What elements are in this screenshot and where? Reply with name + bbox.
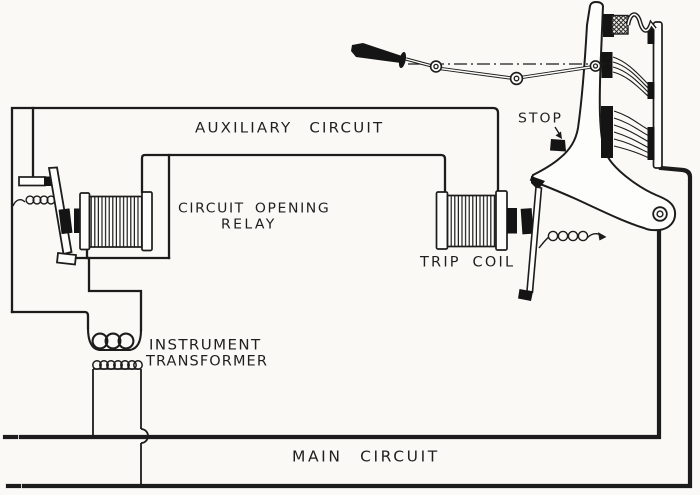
label-instrument-transformer-line1: INSTRUMENT <box>149 336 262 353</box>
label-circuit-opening-relay-line1: CIRCUIT OPENING <box>178 201 330 216</box>
relay-contact-bar <box>19 177 55 187</box>
flexible-lead <box>628 14 655 30</box>
clamp-block <box>612 16 628 35</box>
breaker-pivot <box>653 207 667 221</box>
label-main-circuit: MAIN CIRCUIT <box>292 448 440 465</box>
contact-brushes <box>613 57 649 158</box>
trip-plunger <box>518 176 545 301</box>
label-circuit-opening-relay-line2: RELAY <box>221 217 277 232</box>
circuit-breaker <box>518 2 675 301</box>
operating-linkage <box>351 43 612 84</box>
plunger-spring <box>539 231 605 248</box>
relay-armature <box>49 168 76 265</box>
relay-spring <box>13 196 55 206</box>
circuit-opening-relay <box>13 168 152 265</box>
relay-coil <box>74 192 152 251</box>
trip-coil <box>437 191 534 250</box>
stationary-contact-bar <box>654 22 663 168</box>
label-auxiliary-circuit: AUXILIARY CIRCUIT <box>195 119 384 136</box>
label-instrument-transformer-line2: TRANSFORMER <box>146 354 268 369</box>
label-trip-coil: TRIP COIL <box>420 255 515 270</box>
stop-block <box>550 127 566 152</box>
relay-trip-circuit-diagram: AUXILIARY CIRCUIT CIRCUIT OPENING RELAY … <box>0 0 700 495</box>
instrument-transformer <box>88 328 148 484</box>
label-stop: STOP <box>518 111 563 126</box>
diagram-linework <box>0 0 700 495</box>
operating-handle <box>351 43 407 69</box>
blade-contact-pads <box>601 14 614 158</box>
